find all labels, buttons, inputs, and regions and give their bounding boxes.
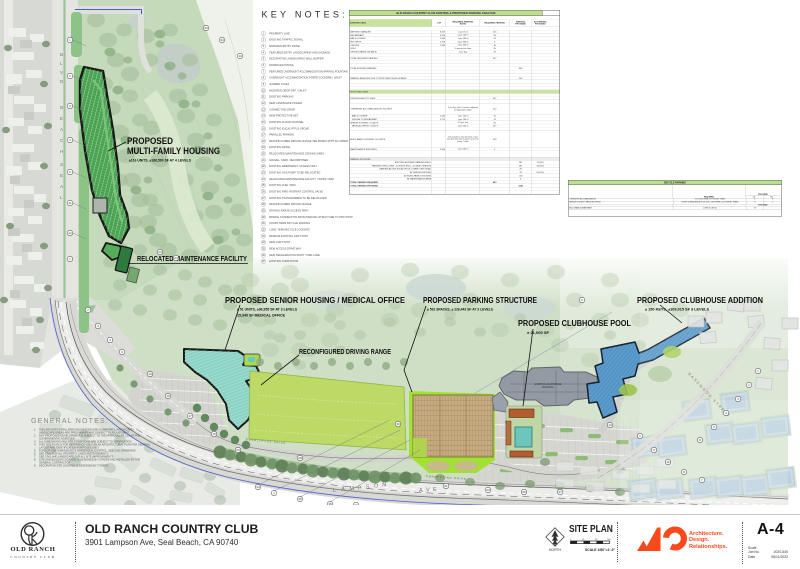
svg-text:GENERAL NOTES:: GENERAL NOTES: bbox=[31, 418, 109, 425]
svg-text:O: O bbox=[374, 484, 379, 490]
svg-text:14: 14 bbox=[238, 54, 242, 58]
svg-text:10: 10 bbox=[666, 460, 670, 464]
svg-text:16: 16 bbox=[166, 394, 170, 398]
svg-text:A: A bbox=[419, 488, 423, 494]
svg-text:11: 11 bbox=[68, 201, 71, 205]
svg-text:17: 17 bbox=[188, 414, 192, 418]
svg-text:PROPOSED PARKING STRUCTURE: PROPOSED PARKING STRUCTURE bbox=[423, 296, 537, 305]
svg-text:34: 34 bbox=[256, 485, 260, 489]
svg-text:MULTI-FAMILY HOUSING: MULTI-FAMILY HOUSING bbox=[127, 146, 220, 156]
svg-text:S: S bbox=[366, 484, 370, 490]
svg-text:B: B bbox=[60, 105, 63, 110]
svg-text:25: 25 bbox=[522, 490, 526, 494]
svg-text:A: A bbox=[341, 487, 345, 493]
svg-text:E: E bbox=[60, 173, 63, 178]
svg-text:L: L bbox=[60, 195, 63, 200]
svg-text:N: N bbox=[382, 483, 386, 489]
svg-text:S: S bbox=[60, 162, 63, 167]
svg-text:25,340 SF MEDICAL OFFICE: 25,340 SF MEDICAL OFFICE bbox=[237, 313, 285, 318]
svg-text:L: L bbox=[333, 488, 336, 494]
svg-text:BUILDING: BUILDING bbox=[542, 386, 553, 389]
svg-text:RELOCATED MAINTENANCE FACILITY: RELOCATED MAINTENANCE FACILITY bbox=[137, 254, 247, 263]
svg-text:P: P bbox=[358, 485, 362, 491]
svg-text:24: 24 bbox=[174, 256, 178, 260]
svg-text:PROPOSED: PROPOSED bbox=[127, 136, 173, 146]
svg-text:35: 35 bbox=[298, 497, 302, 501]
svg-text:± 150 KEYS, ±109,015 SF 3 LEVE: ± 150 KEYS, ±109,015 SF 3 LEVELS bbox=[645, 307, 709, 312]
svg-text:± 51 UNITS, ±96,955 SF AT 3 L: ± 51 UNITS, ±96,955 SF AT 3 LEVELS bbox=[237, 307, 297, 312]
svg-text:19: 19 bbox=[148, 372, 152, 376]
svg-text:12: 12 bbox=[68, 231, 72, 235]
svg-text:± 591 SPACES, ± 226,443 SF AT: ± 591 SPACES, ± 226,443 SF AT 3 LEVELS bbox=[427, 307, 493, 312]
svg-text:B: B bbox=[60, 52, 63, 57]
svg-text:21: 21 bbox=[444, 484, 448, 488]
svg-text:DECORATIVE SITE LIGHTING IS DE: DECORATIVE SITE LIGHTING IS DESIGNED BY … bbox=[39, 464, 108, 468]
svg-text:E: E bbox=[60, 116, 63, 121]
svg-text:V: V bbox=[426, 488, 430, 494]
svg-text:23: 23 bbox=[486, 488, 490, 492]
svg-text:H: H bbox=[60, 149, 63, 154]
svg-text:28: 28 bbox=[298, 456, 302, 460]
svg-text:37: 37 bbox=[558, 490, 562, 494]
svg-text:± 21,000 SF: ± 21,000 SF bbox=[527, 330, 550, 335]
svg-text:29: 29 bbox=[236, 448, 240, 452]
svg-text:9.: 9. bbox=[34, 464, 36, 468]
svg-text:13: 13 bbox=[608, 423, 612, 427]
svg-text:±116 UNITS, ±188,500 SF AT 4: ±116 UNITS, ±188,500 SF AT 4 LEVELS bbox=[129, 158, 191, 163]
svg-text:E: E bbox=[433, 487, 437, 493]
svg-text:30: 30 bbox=[396, 422, 400, 426]
svg-text:NORTH: NORTH bbox=[549, 548, 562, 552]
svg-text:34: 34 bbox=[220, 38, 224, 42]
svg-text:PROPOSED CLUBHOUSE POOL: PROPOSED CLUBHOUSE POOL bbox=[518, 318, 631, 328]
svg-text:PROPOSED SENIOR HOUSING / MEDI: PROPOSED SENIOR HOUSING / MEDICAL OFFICE bbox=[225, 296, 405, 305]
svg-text:160: 160 bbox=[607, 539, 611, 541]
svg-text:1.: 1. bbox=[34, 428, 36, 432]
svg-text:L: L bbox=[60, 61, 63, 66]
svg-text:20: 20 bbox=[158, 250, 162, 254]
svg-text:2.: 2. bbox=[34, 434, 36, 438]
svg-text:PROPOSED CLUBHOUSE ADDITION: PROPOSED CLUBHOUSE ADDITION bbox=[637, 295, 763, 305]
svg-text:4.: 4. bbox=[34, 443, 36, 447]
svg-text:33: 33 bbox=[204, 26, 208, 30]
svg-text:8.: 8. bbox=[34, 458, 36, 462]
svg-text:15: 15 bbox=[212, 432, 216, 436]
svg-text:RECONFIGURED DRIVING RANGE: RECONFIGURED DRIVING RANGE bbox=[299, 347, 391, 356]
